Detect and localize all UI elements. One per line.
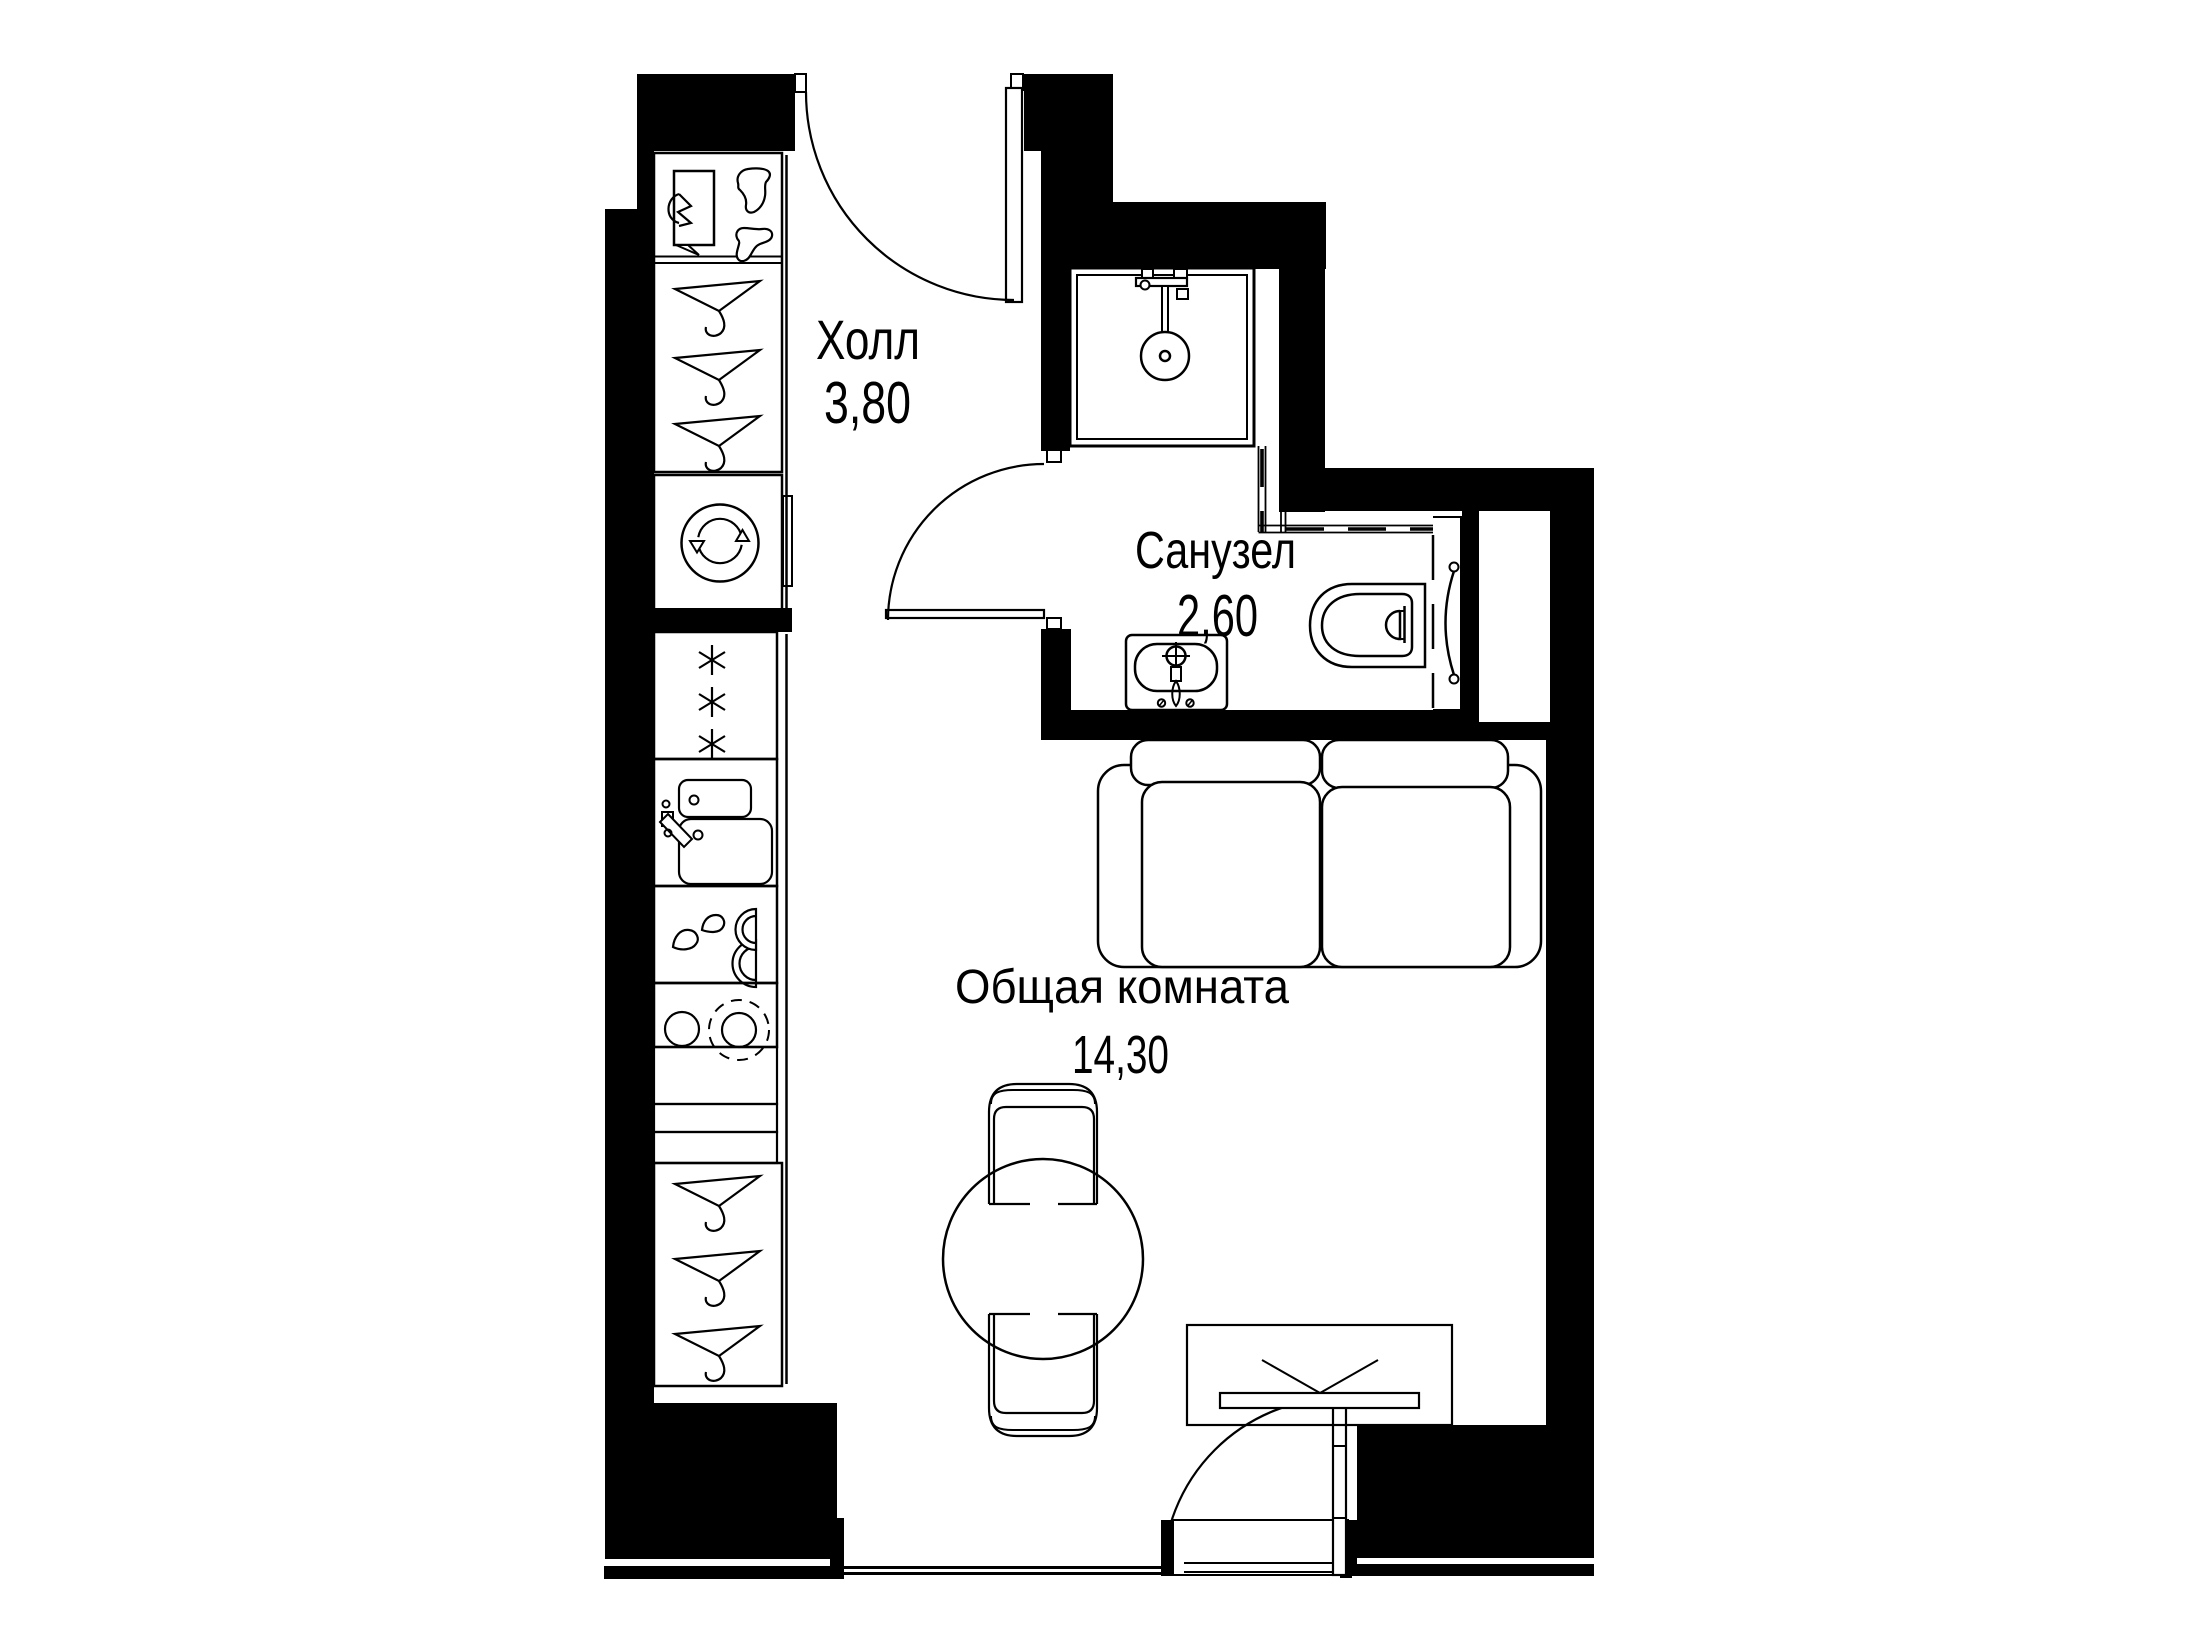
svg-text:Санузел: Санузел	[1135, 522, 1296, 580]
svg-text:3,80: 3,80	[824, 370, 911, 436]
svg-text:14,30: 14,30	[1072, 1026, 1169, 1085]
svg-text:Холл: Холл	[816, 308, 920, 371]
svg-text:2,60: 2,60	[1177, 583, 1258, 649]
svg-text:Общая комната: Общая комната	[955, 961, 1289, 1014]
